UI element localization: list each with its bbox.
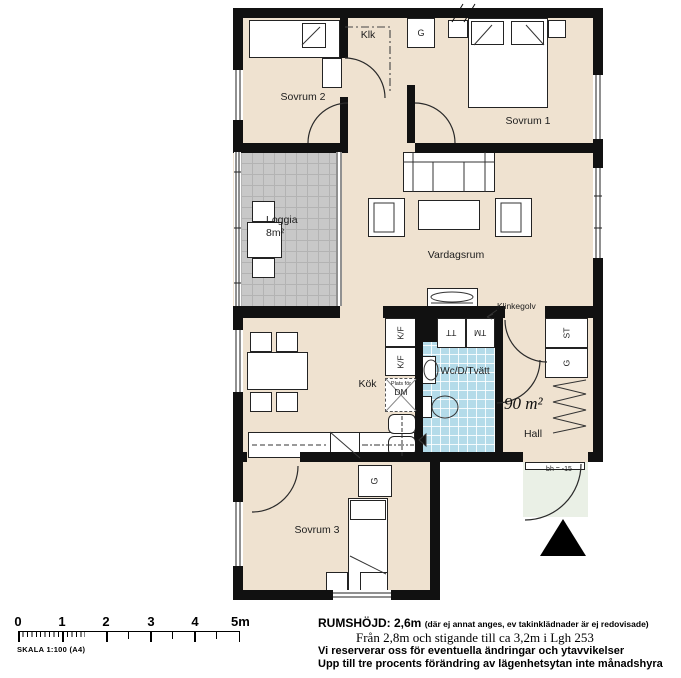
wall-sovrum2-east-b — [340, 97, 348, 143]
kitchen-chair — [276, 392, 298, 412]
wall-bedrooms-south-a — [233, 143, 348, 153]
kitchen-table — [247, 352, 308, 390]
room-label-vardagsrum: Vardagsrum — [406, 249, 506, 262]
pillow-left-sovrum1 — [471, 21, 504, 45]
annotation-klinkegolv: Klinkegolv — [497, 301, 536, 311]
fixture-label-tm: TM — [466, 318, 495, 348]
g-text: G — [562, 360, 572, 367]
closet-label-g-sovrum1: G — [407, 18, 435, 48]
wall-loggia-south — [233, 306, 340, 318]
sink-basin-1 — [388, 414, 416, 434]
tv-bench — [427, 288, 478, 307]
note-ceiling-range: Från 2,8m och stigande till ca 3,2m i Lg… — [356, 631, 680, 645]
bedside-table-sovrum2 — [322, 58, 342, 88]
wall-vardagsrum-south-b — [545, 306, 603, 318]
wall-right-sovrum3 — [430, 462, 440, 600]
room-label-hall: Hall — [508, 428, 558, 441]
scale-major-tick — [18, 631, 20, 642]
note-ceiling-bold: RUMSHÖJD: 2,6m — [318, 616, 421, 630]
loggia-railing-west — [234, 152, 241, 306]
window-sovrum1 — [593, 75, 603, 139]
sofa — [403, 152, 495, 192]
wall-sovrum2-east-a — [340, 18, 348, 58]
scale-major-tick — [239, 631, 241, 642]
fixture-label-dm: DM — [385, 386, 417, 398]
wall-hall-south-stub — [588, 452, 603, 462]
scale-half-tick — [216, 631, 217, 639]
kitchen-chair — [276, 332, 298, 352]
window-kok — [233, 330, 243, 392]
pillow-sovrum3 — [350, 500, 386, 520]
loggia-glazing-east — [336, 152, 342, 306]
scale-tick-label: 2 — [99, 614, 113, 629]
tm-text: TM — [474, 328, 486, 338]
wall-wc-east — [495, 318, 503, 452]
scale-tick-label: 4 — [188, 614, 202, 629]
fixture-label-st: ST — [545, 318, 588, 348]
armchair-left — [368, 198, 405, 237]
scale-half-tick — [128, 631, 129, 639]
room-label-klk: Klk — [348, 29, 388, 42]
nightstand-right — [548, 20, 566, 38]
scale-caption: SKALA 1:100 (A4) — [17, 645, 85, 654]
room-label-loggia: Loggia — [266, 214, 312, 227]
room-label-wc: Wc/D/Tvätt — [430, 366, 500, 378]
wall-sovrum3-north-a — [233, 452, 247, 462]
window-sovrum3-west — [233, 502, 243, 566]
room-label-sovrum2: Sovrum 2 — [258, 91, 348, 104]
fixture-label-kf1: K/F — [385, 318, 417, 347]
wall-wc-niche — [422, 318, 437, 342]
note-disclaimer-1: Vi reserverar oss för eventuella ändring… — [318, 645, 680, 658]
window-sovrum3-south — [333, 590, 391, 600]
kf-text: K/F — [396, 326, 406, 339]
toilet-tank — [422, 396, 432, 418]
kf-text: K/F — [396, 355, 406, 368]
note-ceiling-small: (där ej annat anges, ev takinklädnader ä… — [425, 619, 649, 629]
closet-label-g-hall: G — [545, 348, 588, 378]
fixture-label-tt: TT — [437, 318, 466, 348]
pillow-sovrum2 — [302, 23, 326, 48]
scale-major-tick — [150, 631, 152, 642]
scale-tick-label: 5m — [231, 614, 255, 629]
note-disclaimer-2: Upp till tre procents förändring av läge… — [318, 658, 680, 671]
room-label-sovrum3: Sovrum 3 — [272, 524, 362, 537]
tt-text: TT — [446, 328, 456, 338]
pillow-right-sovrum1 — [511, 21, 544, 45]
coffee-table — [418, 200, 480, 230]
loggia-chair-bottom — [252, 258, 275, 278]
st-text: ST — [562, 328, 572, 339]
scale-tick-label: 1 — [55, 614, 69, 629]
wall-bedrooms-south-b — [415, 143, 593, 153]
note-ceiling-height: RUMSHÖJD: 2,6m (där ej annat anges, ev t… — [318, 617, 680, 631]
scale-tick-label: 3 — [144, 614, 158, 629]
scale-major-tick — [62, 631, 64, 642]
wall-top — [233, 8, 597, 18]
wall-sovrum1-west — [407, 85, 415, 143]
scale-major-tick — [106, 631, 108, 642]
scale-ruler-fine-ticks — [18, 631, 85, 637]
kitchen-chair — [250, 332, 272, 352]
room-label-loggia-area: 8m² — [266, 227, 312, 240]
nightstand-left — [448, 20, 468, 38]
fixture-label-kf2: K/F — [385, 347, 417, 376]
scale-half-tick — [172, 631, 173, 639]
scale-major-tick — [194, 631, 196, 642]
scale-tick-label: 0 — [11, 614, 25, 629]
floor-plan-page: Sovrum 2 Klk G Sovrum 1 Loggia 8m² Varda… — [0, 0, 681, 678]
annotation-sill-height: bh = -15 — [536, 466, 582, 474]
wall-sovrum3-north-b — [300, 452, 523, 462]
wall-vardagsrum-south-a — [383, 306, 505, 318]
room-label-kok: Kök — [345, 378, 390, 391]
closet-label-g-sovrum3: G — [358, 465, 392, 497]
apartment-area-label: 90 m² — [504, 394, 560, 414]
room-label-sovrum1: Sovrum 1 — [483, 115, 573, 128]
bed-sovrum2 — [249, 20, 340, 58]
g-text: G — [370, 477, 380, 484]
armchair-right — [495, 198, 532, 237]
north-arrow-icon — [540, 519, 586, 556]
window-vardagsrum — [593, 168, 603, 258]
kitchen-chair — [250, 392, 272, 412]
window-sovrum2 — [233, 70, 243, 120]
notes-block: RUMSHÖJD: 2,6m (där ej annat anges, ev t… — [318, 617, 680, 671]
